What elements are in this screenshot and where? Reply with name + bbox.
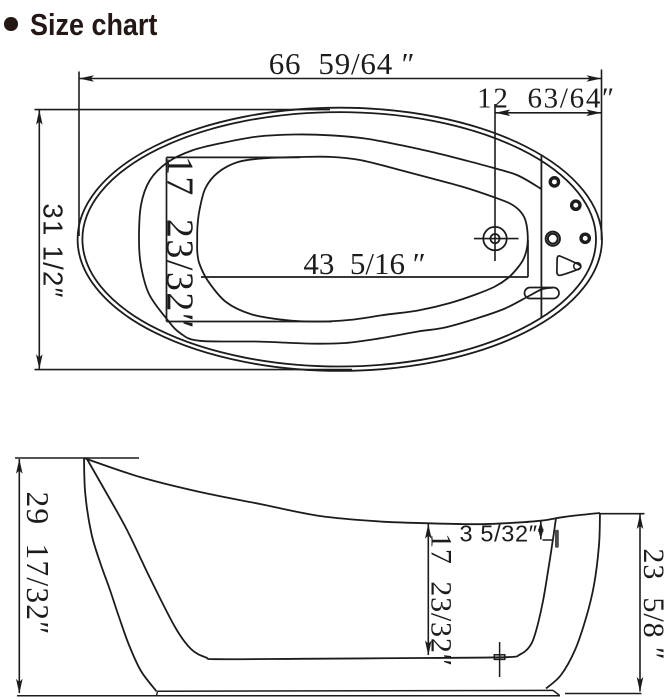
svg-text:12 63/64″: 12 63/64″ xyxy=(477,83,616,115)
svg-text:43 5/16 ″: 43 5/16 ″ xyxy=(303,246,425,281)
svg-text:23 5/8 ″: 23 5/8 ″ xyxy=(637,548,669,660)
svg-text:29 17/32″: 29 17/32″ xyxy=(20,491,55,635)
svg-text:17 23/32″: 17 23/32″ xyxy=(425,533,458,667)
svg-text:66 59/64 ″: 66 59/64 ″ xyxy=(269,46,416,81)
svg-text:31 1/2″: 31 1/2″ xyxy=(38,203,69,298)
svg-text:17 23/32″: 17 23/32″ xyxy=(159,156,201,330)
svg-text:3 5/32″: 3 5/32″ xyxy=(460,520,538,546)
